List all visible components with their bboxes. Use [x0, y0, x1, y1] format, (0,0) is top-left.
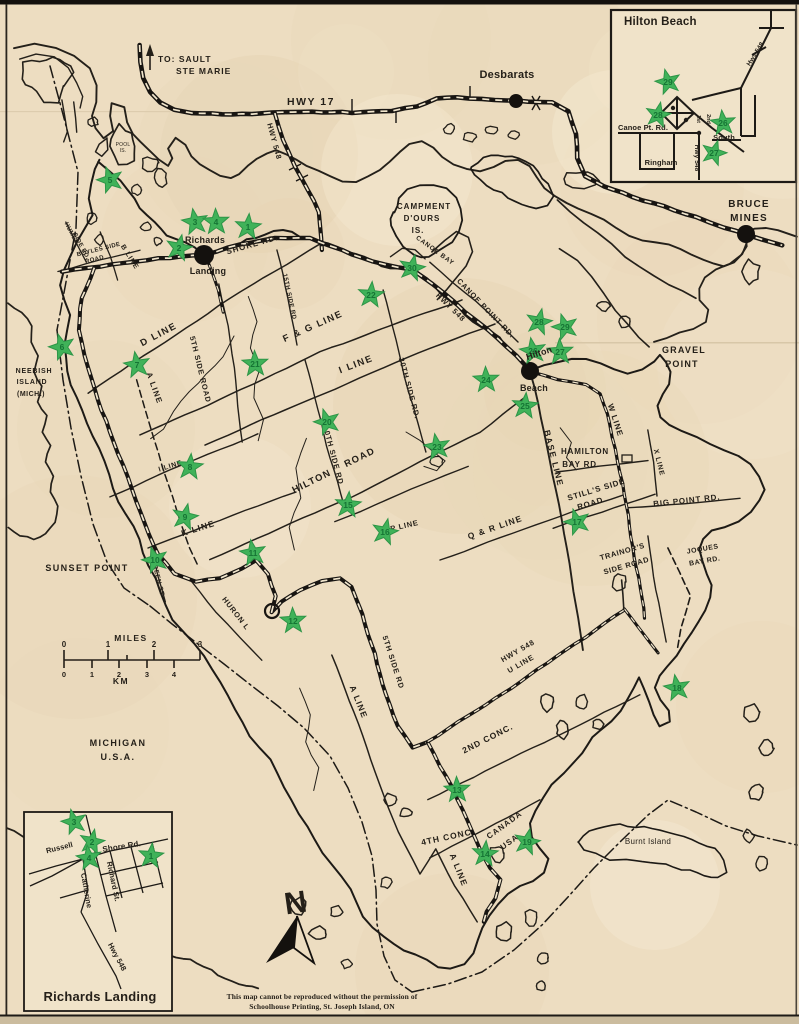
svg-text:26: 26	[718, 118, 728, 128]
svg-text:Ringham: Ringham	[645, 158, 678, 167]
svg-text:Burnt Island: Burnt Island	[625, 837, 671, 846]
svg-text:GRAVEL: GRAVEL	[662, 345, 706, 355]
svg-text:5: 5	[108, 175, 113, 185]
svg-text:11: 11	[249, 548, 258, 558]
svg-text:18: 18	[672, 683, 682, 693]
svg-text:24: 24	[481, 375, 491, 385]
svg-text:0: 0	[62, 640, 67, 649]
svg-text:28: 28	[534, 317, 544, 327]
svg-text:17: 17	[572, 517, 582, 527]
svg-text:D'OURS: D'OURS	[404, 214, 441, 223]
svg-text:16: 16	[380, 527, 390, 537]
svg-text:STE MARIE: STE MARIE	[176, 66, 231, 76]
svg-text:3: 3	[193, 217, 198, 227]
svg-text:25: 25	[520, 401, 530, 411]
svg-text:2: 2	[177, 243, 182, 253]
svg-text:9: 9	[183, 512, 188, 522]
svg-text:This map cannot be reproduced: This map cannot be reproduced without th…	[227, 992, 418, 1001]
svg-text:IS.: IS.	[120, 148, 127, 154]
svg-text:(MICH.): (MICH.)	[17, 391, 45, 398]
svg-text:2: 2	[117, 670, 121, 679]
svg-text:20: 20	[322, 417, 332, 427]
svg-text:ISLAND: ISLAND	[17, 379, 48, 386]
svg-text:8: 8	[188, 462, 193, 472]
svg-text:Richards: Richards	[185, 235, 225, 245]
svg-text:29: 29	[560, 322, 570, 332]
svg-text:19: 19	[522, 837, 532, 847]
svg-text:3: 3	[198, 640, 203, 649]
svg-text:POINT: POINT	[665, 359, 699, 369]
svg-text:3: 3	[72, 817, 77, 827]
svg-text:1st: 1st	[695, 115, 701, 123]
svg-text:HAMILTON: HAMILTON	[561, 447, 609, 456]
svg-text:22: 22	[366, 290, 376, 300]
svg-text:27: 27	[555, 347, 565, 357]
svg-text:2nd: 2nd	[705, 114, 711, 124]
svg-text:27: 27	[709, 148, 719, 158]
svg-text:4: 4	[87, 853, 92, 863]
svg-text:BAY RD.: BAY RD.	[562, 460, 600, 469]
svg-text:BRUCE: BRUCE	[728, 199, 770, 210]
svg-text:SUNSET POINT: SUNSET POINT	[45, 563, 128, 573]
svg-text:TO: SAULT: TO: SAULT	[158, 54, 212, 64]
svg-text:30: 30	[407, 263, 417, 273]
svg-text:1: 1	[90, 670, 94, 679]
svg-text:23: 23	[432, 442, 442, 452]
svg-text:MINES: MINES	[730, 213, 768, 224]
svg-text:U.S.A.: U.S.A.	[101, 752, 136, 762]
svg-text:12: 12	[288, 616, 298, 626]
svg-text:29: 29	[663, 77, 673, 87]
svg-text:NEEBISH: NEEBISH	[16, 368, 53, 375]
svg-text:CAMPMENT: CAMPMENT	[397, 202, 451, 211]
svg-text:Beach: Beach	[520, 383, 548, 393]
svg-text:1: 1	[106, 640, 111, 649]
svg-text:MICHIGAN: MICHIGAN	[90, 738, 147, 748]
svg-text:Hwy 548: Hwy 548	[693, 145, 700, 172]
svg-text:Hilton Beach: Hilton Beach	[624, 16, 697, 28]
svg-text:Schoolhouse Printing, St. Jose: Schoolhouse Printing, St. Joseph Island,…	[249, 1002, 395, 1011]
svg-text:0: 0	[62, 670, 66, 679]
svg-text:15: 15	[343, 500, 353, 510]
svg-text:2: 2	[152, 640, 157, 649]
svg-text:13: 13	[452, 785, 462, 795]
svg-text:14: 14	[480, 849, 490, 859]
svg-text:3: 3	[145, 670, 149, 679]
svg-text:MILES: MILES	[114, 633, 147, 643]
svg-text:10: 10	[150, 555, 160, 565]
svg-text:Landing: Landing	[190, 266, 226, 276]
svg-text:Richards Landing: Richards Landing	[44, 989, 157, 1004]
svg-text:28: 28	[653, 110, 663, 120]
svg-text:1: 1	[246, 222, 251, 232]
svg-text:2: 2	[90, 837, 95, 847]
svg-text:HWY 17: HWY 17	[287, 96, 335, 108]
svg-text:7: 7	[135, 360, 140, 370]
svg-text:1: 1	[149, 851, 154, 861]
svg-text:6: 6	[60, 342, 65, 352]
svg-text:21: 21	[250, 359, 260, 369]
svg-text:4: 4	[214, 217, 219, 227]
svg-text:Desbarats: Desbarats	[480, 69, 535, 81]
